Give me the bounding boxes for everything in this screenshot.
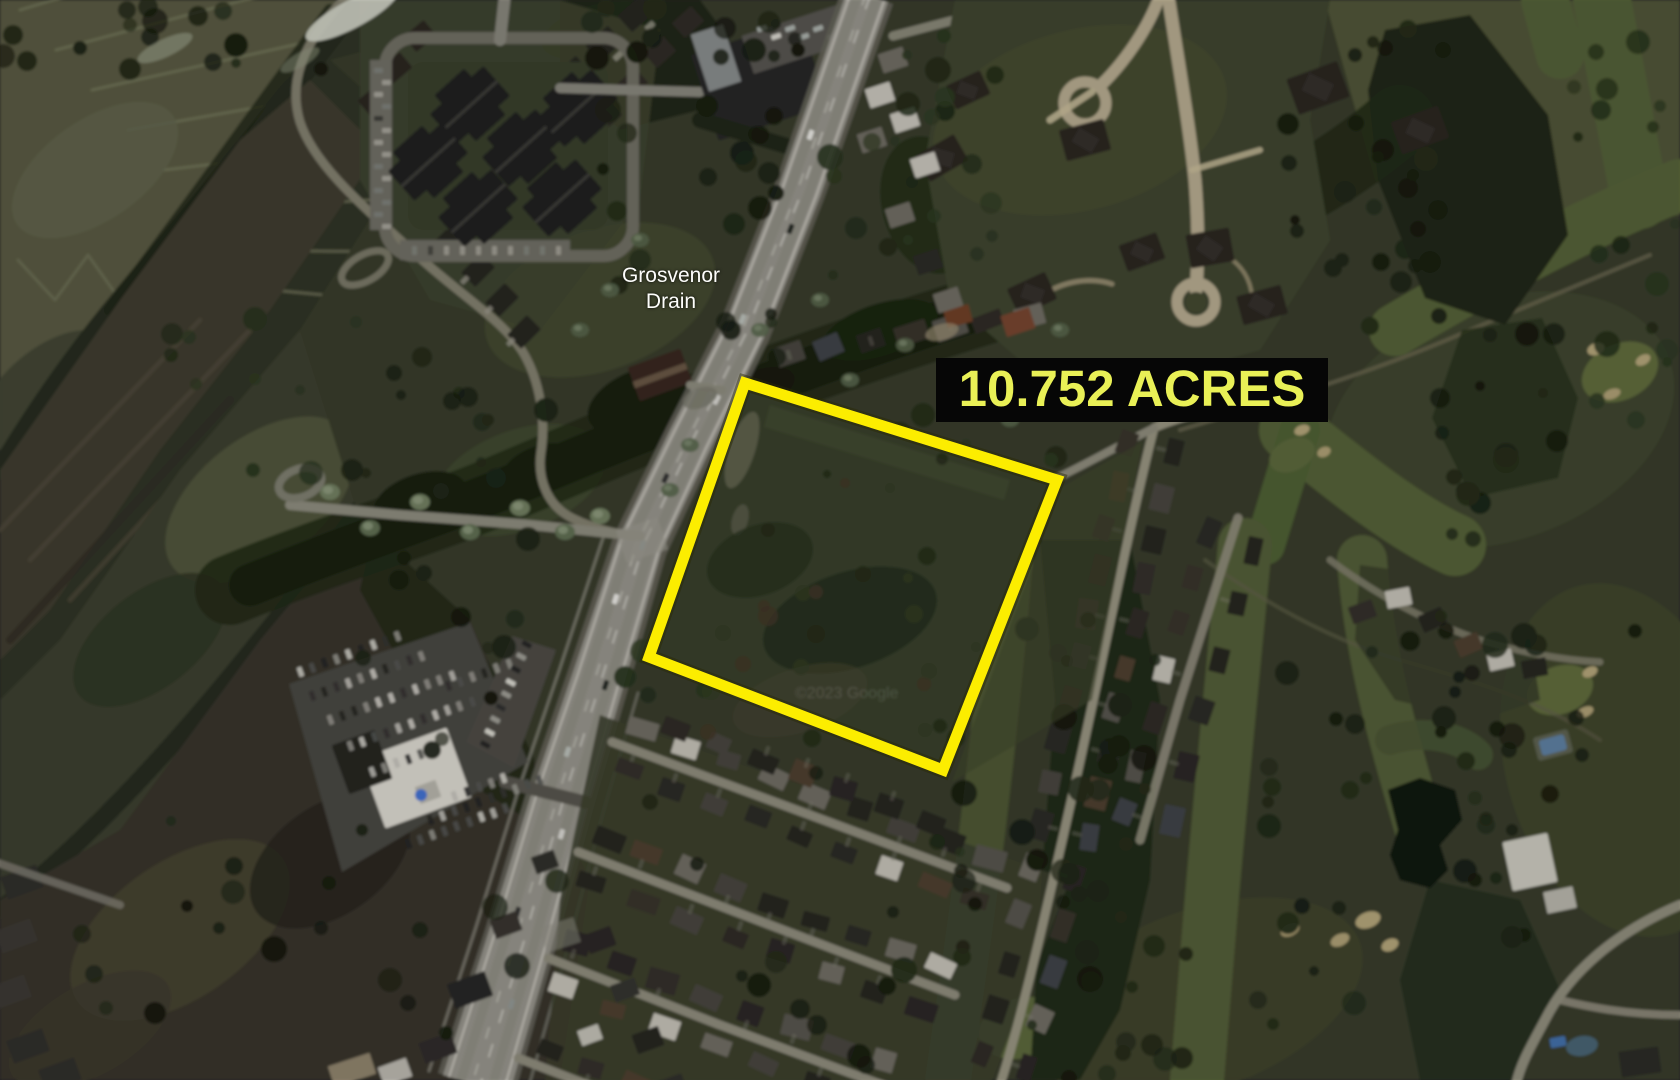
svg-text:Drain: Drain <box>646 290 696 313</box>
svg-text:10.752 ACRES: 10.752 ACRES <box>959 360 1306 417</box>
svg-text:Grosvenor: Grosvenor <box>622 264 720 287</box>
